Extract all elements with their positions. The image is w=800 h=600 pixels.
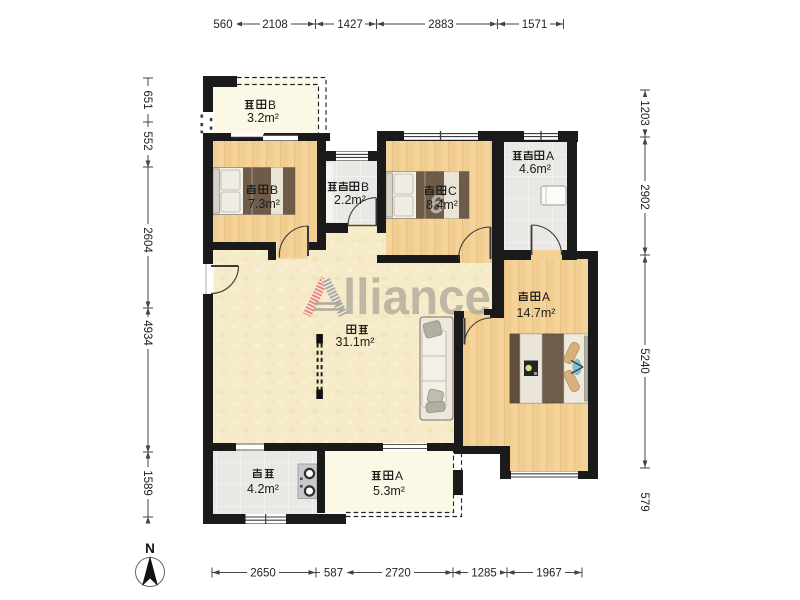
svg-text:2604: 2604	[141, 227, 153, 253]
svg-text:A: A	[395, 469, 403, 483]
svg-text:579: 579	[638, 492, 650, 511]
svg-text:lliance: lliance	[343, 269, 491, 325]
svg-text:N: N	[145, 541, 155, 556]
svg-text:4934: 4934	[141, 320, 153, 346]
svg-text:8.4m²: 8.4m²	[426, 198, 458, 212]
svg-text:2720: 2720	[385, 568, 411, 580]
svg-text:14.7m²: 14.7m²	[517, 306, 556, 320]
svg-text:5240: 5240	[638, 348, 650, 374]
svg-text:552: 552	[141, 131, 153, 150]
svg-text:A: A	[546, 149, 554, 163]
svg-text:560: 560	[213, 19, 232, 31]
svg-text:2883: 2883	[428, 19, 454, 31]
svg-text:5.3m²: 5.3m²	[373, 484, 405, 498]
svg-text:2902: 2902	[638, 184, 650, 210]
svg-text:1427: 1427	[337, 19, 363, 31]
svg-text:C: C	[448, 184, 457, 198]
svg-text:1203: 1203	[638, 100, 650, 126]
svg-text:2108: 2108	[262, 19, 288, 31]
svg-text:2650: 2650	[250, 568, 276, 580]
svg-text:B: B	[270, 183, 278, 197]
svg-text:7.3m²: 7.3m²	[248, 197, 280, 211]
svg-text:A: A	[542, 290, 550, 304]
svg-text:1571: 1571	[522, 19, 548, 31]
svg-text:587: 587	[324, 568, 343, 580]
svg-text:B: B	[361, 180, 369, 194]
svg-text:B: B	[268, 98, 276, 112]
svg-text:2.2m²: 2.2m²	[334, 193, 366, 207]
svg-text:1285: 1285	[471, 568, 497, 580]
svg-text:1967: 1967	[536, 568, 562, 580]
svg-text:651: 651	[141, 90, 153, 109]
svg-text:3.2m²: 3.2m²	[247, 111, 279, 125]
svg-text:31.1m²: 31.1m²	[336, 335, 375, 349]
svg-text:4.2m²: 4.2m²	[247, 482, 279, 496]
svg-text:1589: 1589	[141, 470, 153, 496]
svg-text:4.6m²: 4.6m²	[519, 162, 551, 176]
